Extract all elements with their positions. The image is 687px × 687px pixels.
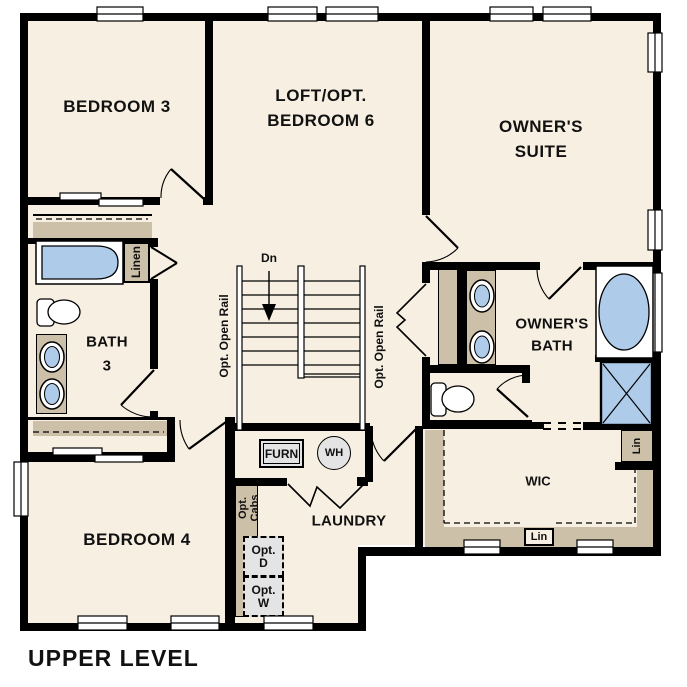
- room-label-owners-suite-line1: OWNER'S: [499, 117, 583, 137]
- owners-suite-door: [426, 216, 458, 262]
- down-arrow-icon: [262, 304, 276, 321]
- bath3-door: [121, 370, 154, 417]
- bath3-toilet: [37, 299, 80, 326]
- laundry-bifold-doors: [288, 484, 364, 508]
- room-label-loft-line1: LOFT/OPT.: [275, 86, 366, 106]
- water-closet-door: [497, 375, 528, 417]
- staircase: [237, 266, 365, 430]
- room-label-owners-suite-line2: SUITE: [515, 142, 568, 162]
- window: [97, 7, 143, 21]
- window: [268, 7, 317, 21]
- room-label-owners-bath-line1: OWNER'S: [515, 316, 588, 333]
- window: [490, 7, 533, 21]
- window: [264, 616, 313, 630]
- window: [326, 7, 378, 21]
- closet-bypass-doors: [53, 193, 143, 462]
- owners-bath-double-doors: [397, 284, 426, 356]
- opt-cabs-label: Opt.Cabs: [237, 495, 261, 522]
- owners-shower: [601, 362, 652, 425]
- room-label-loft-line2: BEDROOM 6: [267, 111, 374, 131]
- lin-label-lower: Lin: [524, 528, 554, 546]
- room-label-laundry: LAUNDRY: [312, 513, 387, 530]
- doors: [121, 169, 581, 508]
- room-label-bath3-line2: 3: [103, 358, 112, 375]
- window: [171, 616, 219, 630]
- lin-label-upper: Lin: [631, 438, 643, 455]
- room-label-wic: WIC: [525, 474, 550, 489]
- bath3-sinks: [40, 342, 64, 409]
- window: [14, 462, 28, 516]
- opt-open-rail-label-left: Opt. Open Rail: [217, 294, 231, 377]
- bedroom3-door: [161, 169, 204, 199]
- room-label-bedroom3: BEDROOM 3: [63, 97, 170, 117]
- opt-open-rail-label-right: Opt. Open Rail: [372, 305, 386, 388]
- window: [543, 7, 591, 21]
- linen-door: [151, 247, 177, 279]
- window: [577, 540, 613, 554]
- bedroom4-door: [180, 419, 230, 449]
- linen-label: Linen: [129, 246, 143, 278]
- page-title: UPPER LEVEL: [28, 645, 199, 672]
- owners-bath-sinks: [470, 280, 494, 363]
- room-label-bath3-line1: BATH: [86, 334, 128, 351]
- window: [464, 540, 500, 554]
- room-label-bedroom4: BEDROOM 4: [83, 530, 190, 550]
- stairs-down-label: Dn: [261, 251, 277, 265]
- suite-to-bath-door: [537, 267, 581, 299]
- laundry-door: [371, 428, 417, 461]
- water-closet-toilet: [431, 383, 474, 416]
- room-label-owners-bath-line2: BATH: [531, 338, 573, 355]
- window: [648, 210, 662, 250]
- floor-plan: FURN WH Opt.D Opt.W: [0, 0, 687, 687]
- window: [78, 616, 127, 630]
- owners-tub: [596, 266, 653, 358]
- bath3-tub: [36, 241, 123, 284]
- wic-opening: [543, 423, 583, 429]
- window: [648, 33, 662, 72]
